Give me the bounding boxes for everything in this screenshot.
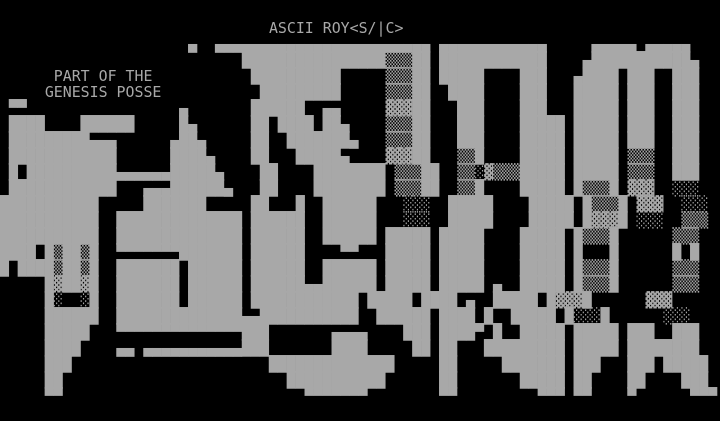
ansi-art-jam-logo: ASCII ROY<S/|C> ▄ ▄▄▄▄▄▄▄▄▄▄▄▄▄▄▄▄▄▄▄▄▄▄… bbox=[0, 4, 720, 420]
terminal-screen: ASCII ROY<S/|C> ▄ ▄▄▄▄▄▄▄▄▄▄▄▄▄▄▄▄▄▄▄▄▄▄… bbox=[0, 0, 720, 410]
